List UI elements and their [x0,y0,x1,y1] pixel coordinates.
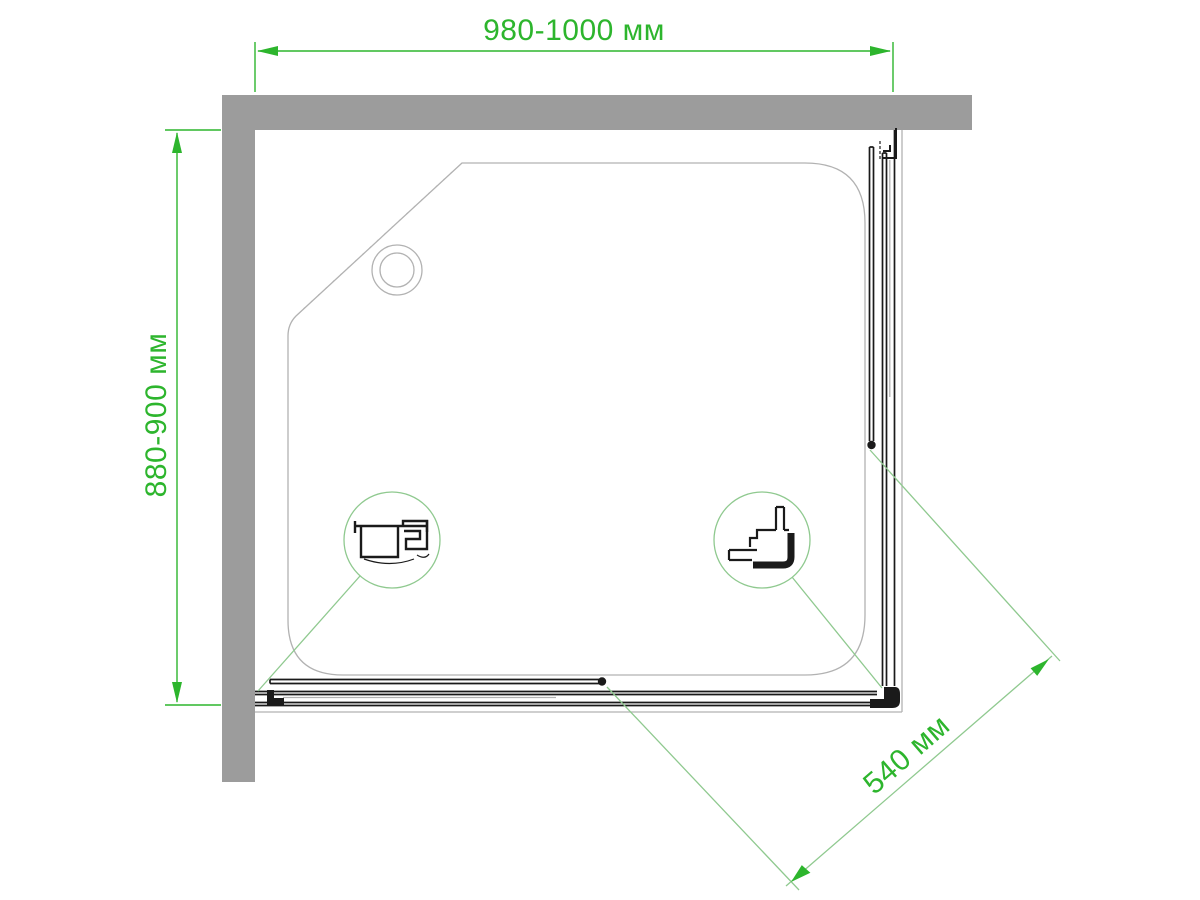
left-wall [222,95,255,782]
width-arrow-left [257,46,278,56]
depth-arrow-top [172,132,182,153]
corner-profile-arm [729,550,757,560]
shower-enclosure-drawing: 980-1000 мм 880-900 мм 540 мм [0,0,1200,900]
leader-line-right [792,577,882,688]
rail-profile-bottom-arcs [364,554,429,564]
corner-profile-detail [729,507,791,565]
profile-details [355,507,791,565]
width-arrow-right [870,46,891,56]
bottom-left-track-bracket [267,690,284,706]
detail-circle-right [714,492,810,588]
bottom-track-rails [255,692,877,706]
right-fixed-panel [883,153,887,686]
door-opening-dimension-label: 540 мм [857,709,956,801]
detail-circle-left [344,492,440,588]
width-dimension-label: 980-1000 мм [483,14,665,47]
corner-profile-stem [776,507,784,530]
depth-dimension-label: 880-900 мм [140,333,173,498]
leaders [258,450,1060,890]
corner-profile-body [753,533,791,565]
leader-line-left [258,576,360,691]
door-frames [255,128,896,706]
right-sliding-panel [870,147,874,441]
drain-inner-circle [380,253,414,287]
dimensions [165,42,893,705]
corner-profile-steps [750,530,789,547]
door-dim-extension-2 [607,687,799,890]
rail-profile-detail [355,520,429,564]
rail-profile-left-chamber [361,526,398,557]
tray-basin-outline [288,163,865,675]
bottom-right-corner-piece [870,687,900,708]
bottom-sliding-panel [270,680,600,684]
right-panel-roller [867,441,875,449]
door-dim-line [786,656,1052,886]
door-hardware [267,441,900,708]
tray-outer-edge [255,130,902,712]
shower-tray [255,130,902,712]
technical-drawing-page: 980-1000 мм 880-900 мм 540 мм [0,0,1200,900]
bottom-panel-roller [598,677,606,685]
door-arrow-upper [1031,659,1049,676]
door-dim-extension-1 [870,450,1060,661]
top-wall [222,95,972,130]
depth-arrow-bottom [172,682,182,703]
